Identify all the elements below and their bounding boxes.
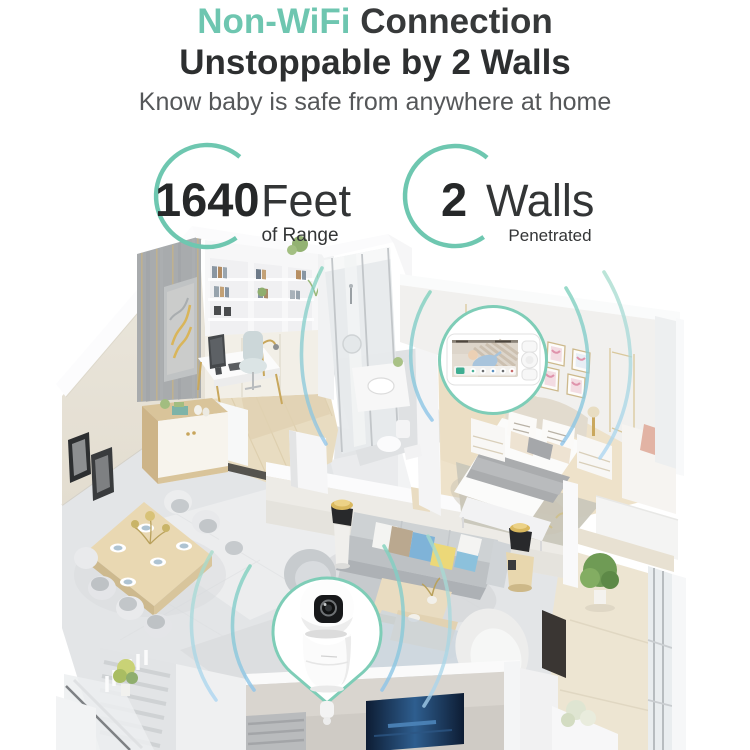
svg-text:Non-WiFi Connection: Non-WiFi Connection — [197, 2, 552, 41]
svg-text:1640: 1640 — [155, 173, 260, 226]
svg-text:of Range: of Range — [261, 225, 338, 246]
svg-text:Unstoppable by 2 Walls: Unstoppable by 2 Walls — [179, 43, 571, 82]
svg-text:Penetrated: Penetrated — [508, 226, 591, 245]
svg-text:Walls: Walls — [486, 175, 594, 226]
svg-text:Feet: Feet — [261, 175, 352, 226]
svg-text:2: 2 — [441, 173, 467, 226]
svg-text:Know baby is safe from anywher: Know baby is safe from anywhere at home — [139, 88, 611, 116]
